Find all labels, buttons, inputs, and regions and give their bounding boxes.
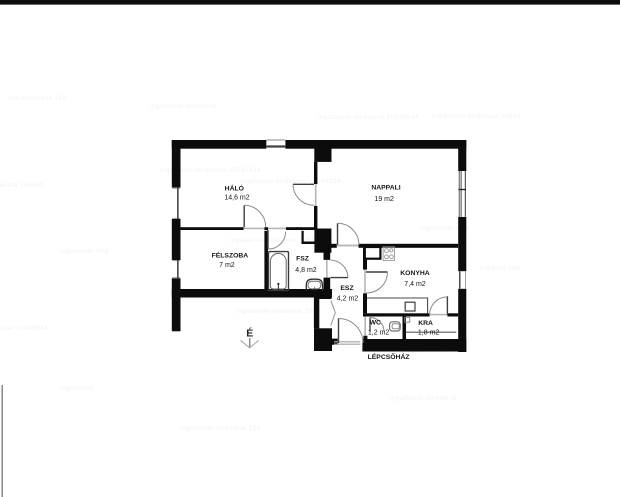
svg-text:ingatlanok-hirdetese: ingatlanok-hirdetese bbox=[150, 103, 217, 110]
svg-text:4,8 m2: 4,8 m2 bbox=[295, 267, 317, 274]
svg-text:1,2 m2: 1,2 m2 bbox=[368, 329, 390, 336]
svg-text:tese 10545934: tese 10545934 bbox=[0, 325, 48, 332]
svg-text:ingatlanok-hirdetese 1054: ingatlanok-hirdetese 1054 bbox=[236, 308, 321, 315]
svg-text:esete 105459: esete 105459 bbox=[0, 182, 44, 189]
svg-text:ingatlanok: ingatlanok bbox=[60, 385, 94, 392]
svg-text:ingatlanok-hirdetese 10545: ingatlanok-hirdetese 10545 bbox=[432, 113, 521, 120]
svg-text:7,4 m2: 7,4 m2 bbox=[404, 281, 426, 288]
svg-text:NAPPALI: NAPPALI bbox=[371, 184, 400, 191]
svg-text:LÉPCSŐHÁZ: LÉPCSŐHÁZ bbox=[368, 352, 410, 361]
svg-text:ingatlanok-hirdetese: ingatlanok-hirdetese bbox=[390, 395, 457, 402]
svg-text:ingatlanok-hirdetese 105: ingatlanok-hirdetese 105 bbox=[180, 425, 261, 432]
svg-text:HÁLÓ: HÁLÓ bbox=[225, 183, 244, 192]
svg-text:É: É bbox=[246, 327, 253, 340]
svg-text:FSZ: FSZ bbox=[296, 255, 309, 262]
svg-text:ingatlanok-hirdetese 10545934: ingatlanok-hirdetese 10545934 bbox=[318, 114, 419, 121]
svg-text:14,6 m2: 14,6 m2 bbox=[224, 195, 249, 202]
svg-text:FÉLSZOBA: FÉLSZOBA bbox=[212, 250, 249, 259]
svg-text:19 m2: 19 m2 bbox=[374, 196, 394, 203]
svg-text:ESZ: ESZ bbox=[340, 285, 353, 292]
svg-text:WC: WC bbox=[370, 319, 381, 326]
svg-text:7 m2: 7 m2 bbox=[219, 262, 235, 269]
svg-text:KONYHA: KONYHA bbox=[400, 270, 430, 277]
svg-text:ingatlan 105: ingatlan 105 bbox=[480, 265, 520, 272]
svg-text:ingatlanok-hird: ingatlanok-hird bbox=[60, 248, 109, 255]
svg-text:4,2 m2: 4,2 m2 bbox=[337, 295, 359, 302]
svg-text:KRA: KRA bbox=[418, 320, 433, 327]
svg-text:ingatlanok-hirdetese 10545934: ingatlanok-hirdetese 10545934 bbox=[240, 178, 341, 185]
svg-text:nok-hirdetese 105: nok-hirdetese 105 bbox=[8, 95, 67, 102]
svg-text:1,8 m2: 1,8 m2 bbox=[418, 329, 440, 336]
